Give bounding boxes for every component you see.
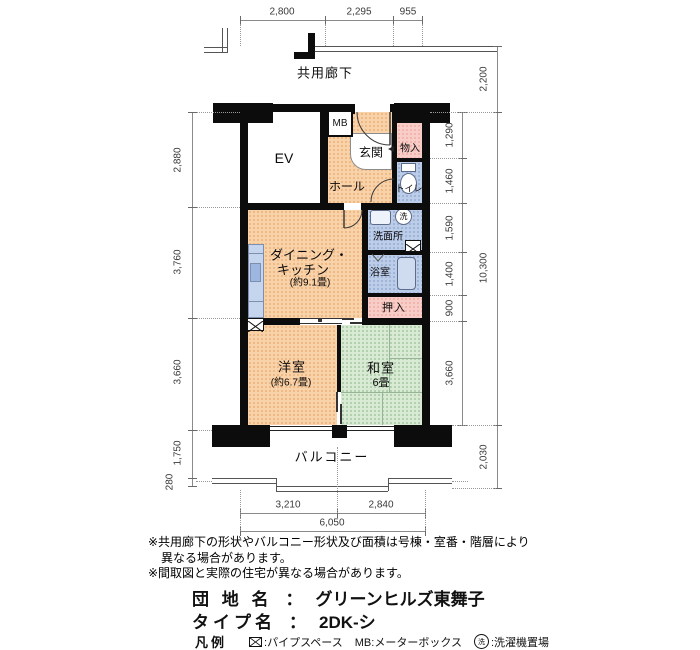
ext-line — [197, 207, 240, 208]
dim-label: 2,295 — [346, 7, 371, 18]
legend-pipe-space: :パイプスペース — [249, 634, 343, 650]
ext-line — [197, 318, 240, 319]
hall-label: ホール — [329, 178, 365, 195]
washroom-door-arc — [371, 179, 394, 202]
dim-label: 1,460 — [445, 168, 456, 193]
entry-storage-label: 物入 — [400, 140, 420, 155]
dim-label: 2,200 — [479, 66, 490, 91]
ext-line — [393, 24, 394, 46]
legend-title: 凡例 — [195, 632, 227, 650]
separator: ： — [285, 590, 302, 609]
dim-line-bottom1 — [240, 513, 426, 514]
estate-name-row: 団 地 名：グリーンヒルズ東舞子 — [192, 585, 485, 610]
entrance-door-arc — [357, 112, 390, 145]
note-line: ※共用廊下の形状やバルコニー形状及び面積は号棟・室番・階層により — [148, 533, 530, 550]
legend-washer: 洗 :洗濯機置場 — [474, 634, 549, 650]
estate-label: 団 地 名 — [192, 590, 272, 609]
dim-tick — [188, 318, 197, 319]
door-arcs — [0, 0, 700, 650]
dim-label: 2,800 — [269, 7, 294, 18]
separator: ： — [289, 613, 306, 632]
ext-line — [240, 24, 241, 46]
legend-washer-text: :洗濯機置場 — [491, 634, 549, 650]
dim-label: 955 — [400, 7, 417, 18]
estate-name: グリーンヒルズ東舞子 — [315, 590, 484, 609]
dim-tick — [188, 478, 197, 479]
ext-line — [430, 112, 496, 113]
dim-line-bottom2 — [240, 531, 426, 532]
futon-closet-label: 押入 — [382, 299, 406, 315]
entrance-label: 玄関 — [359, 144, 383, 161]
dim-label: 1,400 — [445, 261, 456, 286]
bathroom-door-mark — [372, 254, 384, 261]
shape — [406, 244, 420, 254]
floor-plan-page: 洗 — [0, 0, 700, 650]
ext-line — [197, 430, 212, 431]
dim-label: 3,760 — [173, 249, 184, 274]
pipe-space-icon — [247, 318, 264, 331]
ext-line — [430, 158, 461, 159]
legend-meter-box: MB:メーターボックス — [355, 634, 462, 650]
pipe-space-icon — [405, 240, 421, 252]
entry-storage-arrow-icon — [388, 146, 394, 152]
dim-label: 3,660 — [173, 359, 184, 384]
dim-label: 1,750 — [173, 440, 184, 465]
washroom-label: 洗面所 — [373, 228, 403, 243]
dim-tick — [188, 486, 197, 487]
western-room-size-label: (約6.7畳) — [271, 374, 312, 389]
x-mark — [406, 244, 420, 254]
meter-box-label: MB — [333, 118, 348, 129]
dim-label: 3,210 — [275, 500, 300, 511]
ext-line — [430, 203, 461, 204]
ext-line — [325, 24, 326, 46]
ext-line — [452, 425, 496, 426]
ext-line — [452, 488, 496, 489]
legend-row: 凡例 :パイプスペース MB:メーターボックス 洗 :洗濯機置場 — [195, 632, 549, 650]
dim-label: 1,590 — [445, 215, 456, 240]
dk-size-label: (約9.1畳) — [290, 274, 331, 289]
dim-tick — [188, 112, 197, 113]
meter-box: MB — [327, 110, 353, 137]
type-label: タイプ名 — [192, 613, 276, 632]
x-mark — [248, 321, 263, 332]
ext-line — [337, 447, 338, 513]
dim-label: 2,880 — [173, 147, 184, 172]
legend-pipe-space-text: :パイプスペース — [264, 634, 343, 650]
dim-label: 900 — [445, 300, 456, 317]
pipe-space-icon — [249, 637, 262, 647]
legend-meter-box-text: MB:メーターボックス — [355, 634, 462, 650]
hall-dk-door-arc — [344, 210, 362, 228]
ext-line — [430, 321, 461, 322]
dim-label: 280 — [165, 474, 176, 491]
toilet-label: トイレ — [395, 182, 422, 195]
ext-line — [425, 490, 426, 531]
ext-line — [430, 252, 461, 253]
washer-circle-icon: 洗 — [474, 634, 489, 649]
bathroom-label: 浴室 — [370, 264, 390, 279]
ext-line — [197, 112, 240, 113]
ext-line — [422, 24, 423, 46]
ext-line — [240, 490, 241, 531]
note-line: ※間取図と実際の住宅が異なる場合があります。 — [148, 564, 409, 581]
corridor-label: 共用廊下 — [297, 63, 353, 82]
dim-label: 2,030 — [479, 444, 490, 469]
dim-tick — [188, 430, 197, 431]
shape — [248, 321, 263, 332]
type-name-row: タイプ名：2DK-シ — [192, 608, 376, 633]
dim-tick — [188, 207, 197, 208]
dim-line-top — [240, 20, 423, 21]
dim-label: 6,050 — [319, 518, 344, 529]
dim-tick — [493, 46, 502, 47]
balcony-label: バルコニー — [295, 447, 370, 466]
dim-label: 1,290 — [445, 122, 456, 147]
dim-label: 10,300 — [479, 253, 490, 284]
ext-line — [430, 295, 461, 296]
elevator-label: EV — [275, 150, 294, 166]
dim-label: 2,840 — [368, 500, 393, 511]
dim-label: 3,660 — [445, 360, 456, 385]
japanese-room-size-label: 6畳 — [372, 374, 389, 390]
type-name: 2DK-シ — [319, 613, 376, 632]
